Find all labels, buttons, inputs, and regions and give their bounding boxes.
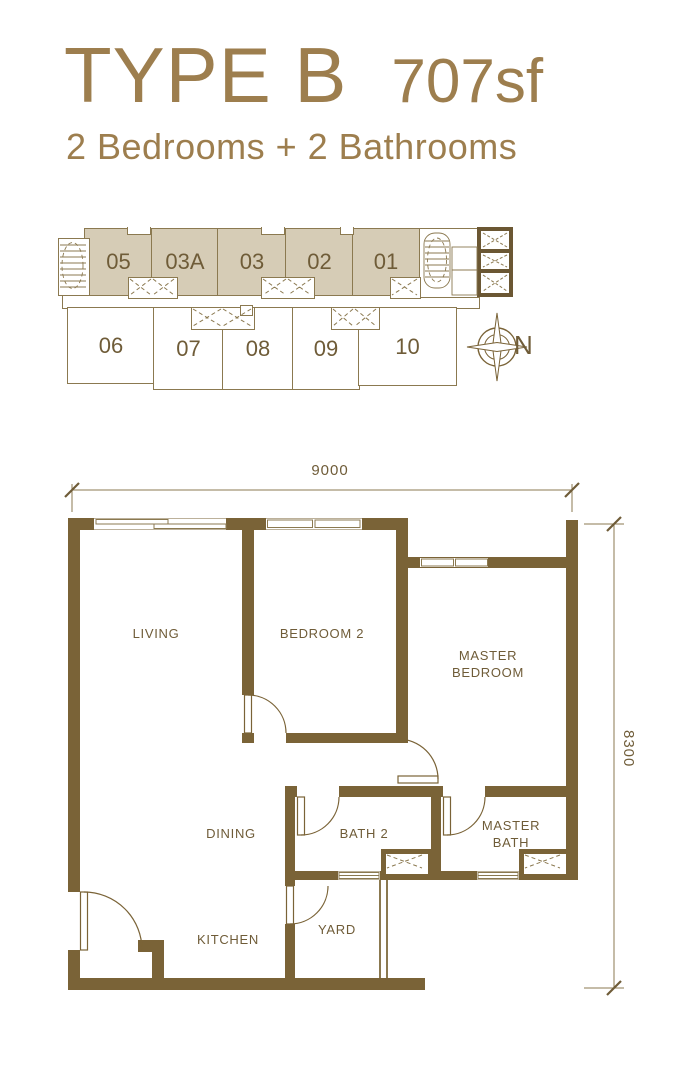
unit-label: 01 [374,249,398,275]
page-title: TYPE B [64,30,347,121]
ac-ledge-master-bath [519,849,571,879]
room-label-master-bath: MASTER BATH [473,818,549,852]
wall-bath2-left [285,786,295,880]
room-label-living: LIVING [106,626,206,643]
dimension-line-depth [584,517,624,995]
wall-right [566,520,578,880]
wall-top [68,518,408,530]
dimension-depth: 8300 [620,730,637,767]
unit-label: 05 [106,249,130,275]
floor-plan-page: TYPE B 707sf 2 Bedrooms + 2 Bathrooms 05… [0,0,679,1080]
doors [81,695,486,950]
stairwell-right-icon [422,232,451,290]
wall-yard-divider [285,924,295,980]
room-label-kitchen: KITCHEN [178,932,278,949]
wall-bedroom2-door-stub [242,733,254,743]
ac-ledge [261,277,315,299]
room-label-bath2: BATH 2 [314,826,414,843]
wall-living-bedroom2 [242,530,254,695]
compass-north-label: N [514,330,533,361]
ac-ledge [128,277,178,299]
room-label-master-bedroom: MASTER BEDROOM [442,648,534,682]
ac-ledge [390,277,421,299]
dimension-line-width [65,483,579,512]
room-label-yard: YARD [297,922,377,939]
yard-door [287,886,329,924]
unit-label: 08 [246,336,270,362]
unit-label: 09 [314,336,338,362]
wall-entry-step [152,950,164,980]
ac-ledge-bath2 [381,849,433,879]
lift-shaft-divider [481,269,509,273]
dimension-width: 9000 [300,462,360,479]
unit-label: 03 [240,249,264,275]
unit-label: 02 [307,249,331,275]
facade-notch [127,227,151,235]
unit-label: 10 [395,334,419,360]
wall-bottom [68,978,425,990]
header: TYPE B 707sf [64,30,543,121]
keyplan-unit-06: 06 [67,307,155,384]
entry-door [81,892,143,950]
facade-notch [261,227,285,235]
wall-master-bedroom-top [402,557,568,568]
wall-bedroom2-bottom [286,733,408,743]
wall-yard-divider-stub [285,880,295,886]
ac-ledge [331,307,380,330]
wall-left-upper [68,518,80,892]
room-label-bedroom2: BEDROOM 2 [272,626,372,643]
room-label-dining: DINING [181,826,281,843]
facade-notch [340,227,354,235]
unit-label: 03A [165,249,204,275]
ac-ledge-small [240,305,253,316]
bedroom2-door [245,695,287,733]
lift-shaft-divider [481,249,509,253]
master-suite-door [398,739,438,783]
lift-shaft-icon [477,227,513,297]
unit-configuration: 2 Bedrooms + 2 Bathrooms [66,126,517,168]
unit-area: 707sf [391,46,543,117]
wall-yard-glazing [379,880,388,978]
stairwell-left-icon [58,238,90,296]
unit-label: 06 [99,333,123,359]
wall-corridor [396,518,408,740]
unit-label: 07 [176,336,200,362]
